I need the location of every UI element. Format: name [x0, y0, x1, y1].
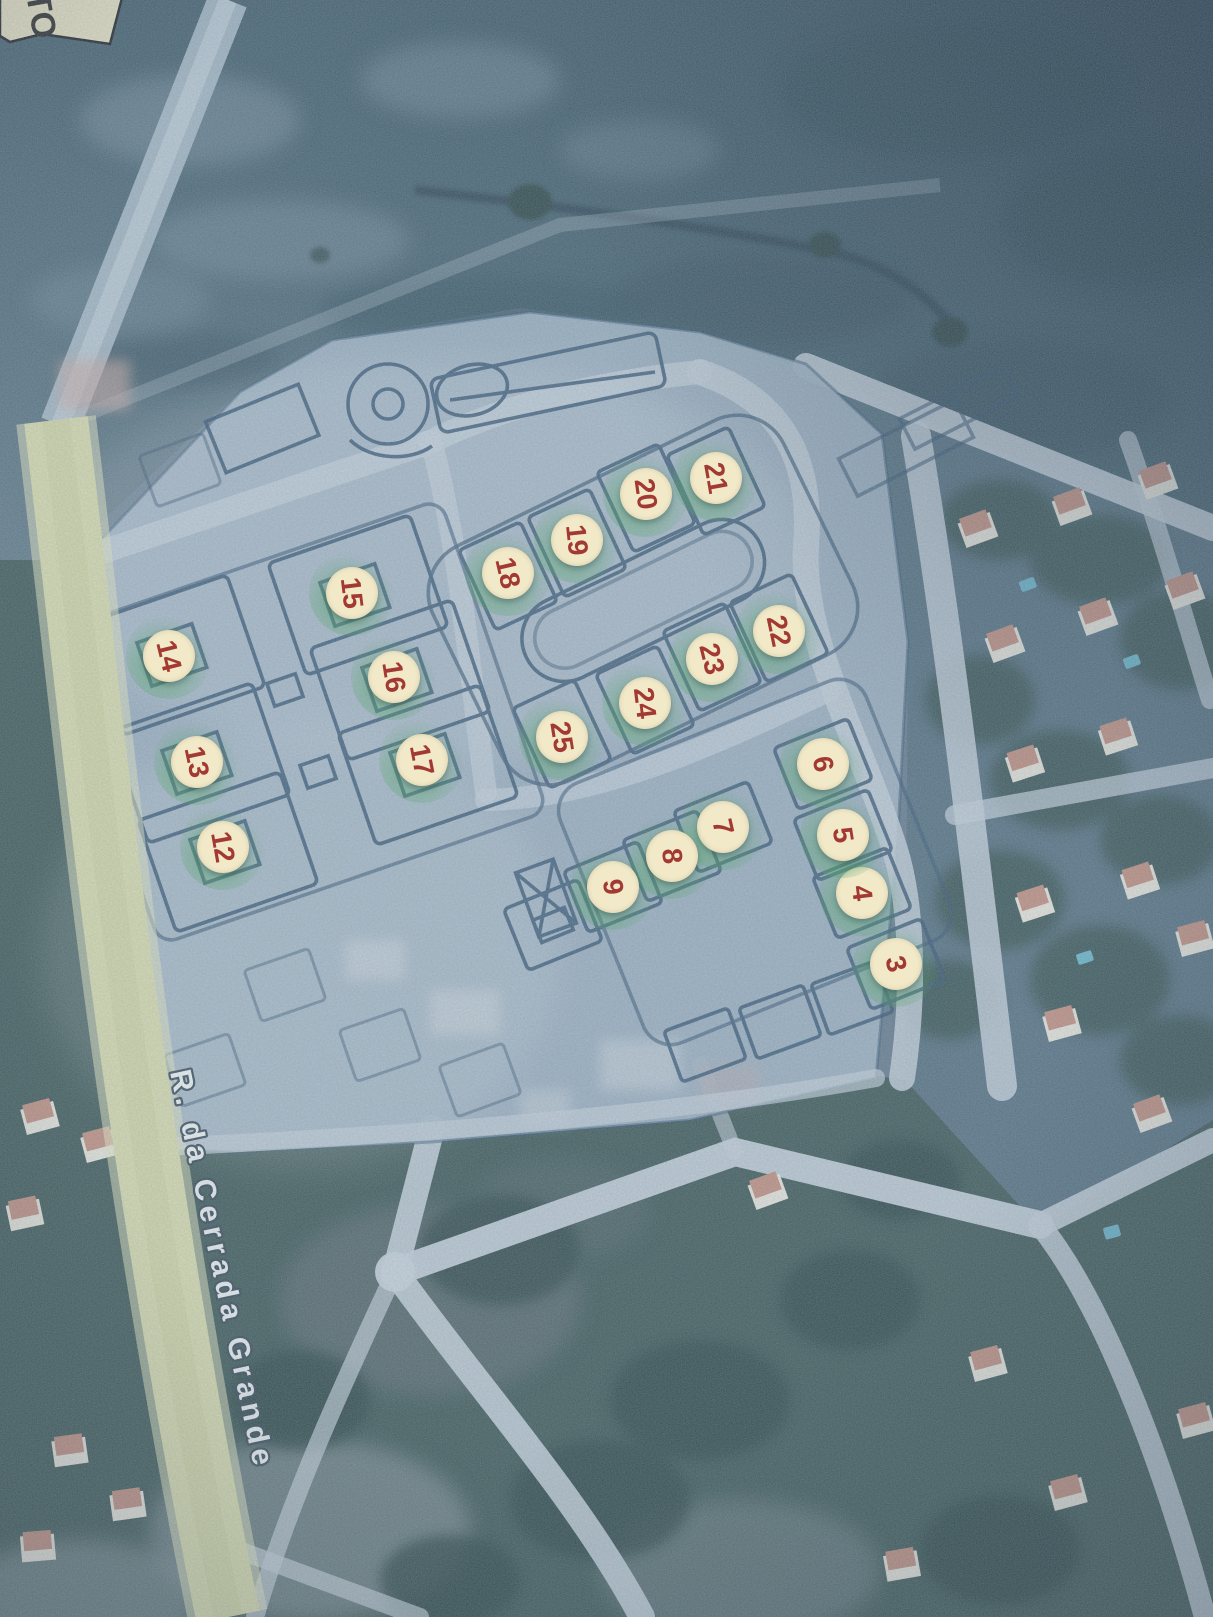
marker-disc: 21	[690, 452, 742, 504]
lot-marker-21: 21	[673, 435, 759, 521]
lot-number: 12	[207, 829, 240, 865]
marker-disc: 3	[870, 938, 922, 990]
lot-number: 25	[546, 719, 579, 754]
lot-number: 14	[152, 637, 187, 674]
lot-marker-9: 9	[570, 844, 656, 930]
marker-disc: 24	[619, 677, 671, 729]
lot-number: 13	[180, 744, 214, 780]
lot-marker-15: 15	[309, 550, 395, 636]
marker-disc: 17	[396, 734, 448, 786]
lot-number: 5	[828, 825, 858, 845]
lot-number: 21	[700, 460, 733, 496]
lot-number: 23	[695, 640, 730, 677]
lot-marker-6: 6	[780, 721, 866, 807]
lot-number: 3	[881, 953, 912, 975]
lot-marker-14: 14	[126, 613, 212, 699]
lot-marker-16: 16	[351, 634, 437, 720]
marker-disc: 9	[587, 861, 639, 913]
lot-marker-17: 17	[379, 717, 465, 803]
lot-marker-25: 25	[519, 694, 605, 780]
lot-marker-13: 13	[154, 719, 240, 805]
lot-number: 9	[598, 877, 628, 896]
marker-disc: 12	[197, 821, 249, 873]
marker-disc: 16	[368, 651, 420, 703]
lot-number: 15	[336, 576, 368, 610]
lot-number: 6	[808, 754, 838, 775]
lot-marker-24: 24	[602, 660, 688, 746]
lot-number: 22	[762, 613, 796, 649]
printed-map-photo: R. da Cerrada Grande TO 3456789121314151…	[0, 0, 1213, 1617]
marker-disc: 23	[686, 633, 738, 685]
marker-disc: 19	[551, 514, 603, 566]
lot-number: 20	[630, 477, 662, 512]
marker-disc: 25	[536, 711, 588, 763]
lot-number: 4	[847, 884, 877, 903]
marker-disc: 5	[817, 809, 869, 861]
lot-marker-12: 12	[180, 804, 266, 890]
lot-number: 8	[657, 847, 686, 865]
marker-disc: 13	[171, 736, 223, 788]
marker-disc: 22	[753, 605, 805, 657]
lot-number: 17	[405, 742, 438, 778]
marker-disc: 6	[797, 738, 849, 790]
lot-number: 24	[629, 686, 661, 720]
marker-disc: 14	[143, 630, 195, 682]
marker-disc: 18	[482, 547, 534, 599]
marker-disc: 15	[326, 567, 378, 619]
lot-number: 19	[561, 523, 592, 557]
lot-number: 18	[491, 555, 525, 592]
lot-number: 16	[378, 659, 411, 694]
marker-disc: 20	[620, 468, 672, 520]
lot-markers-layer: 34567891213141516171819202122232425	[0, 0, 1213, 1617]
